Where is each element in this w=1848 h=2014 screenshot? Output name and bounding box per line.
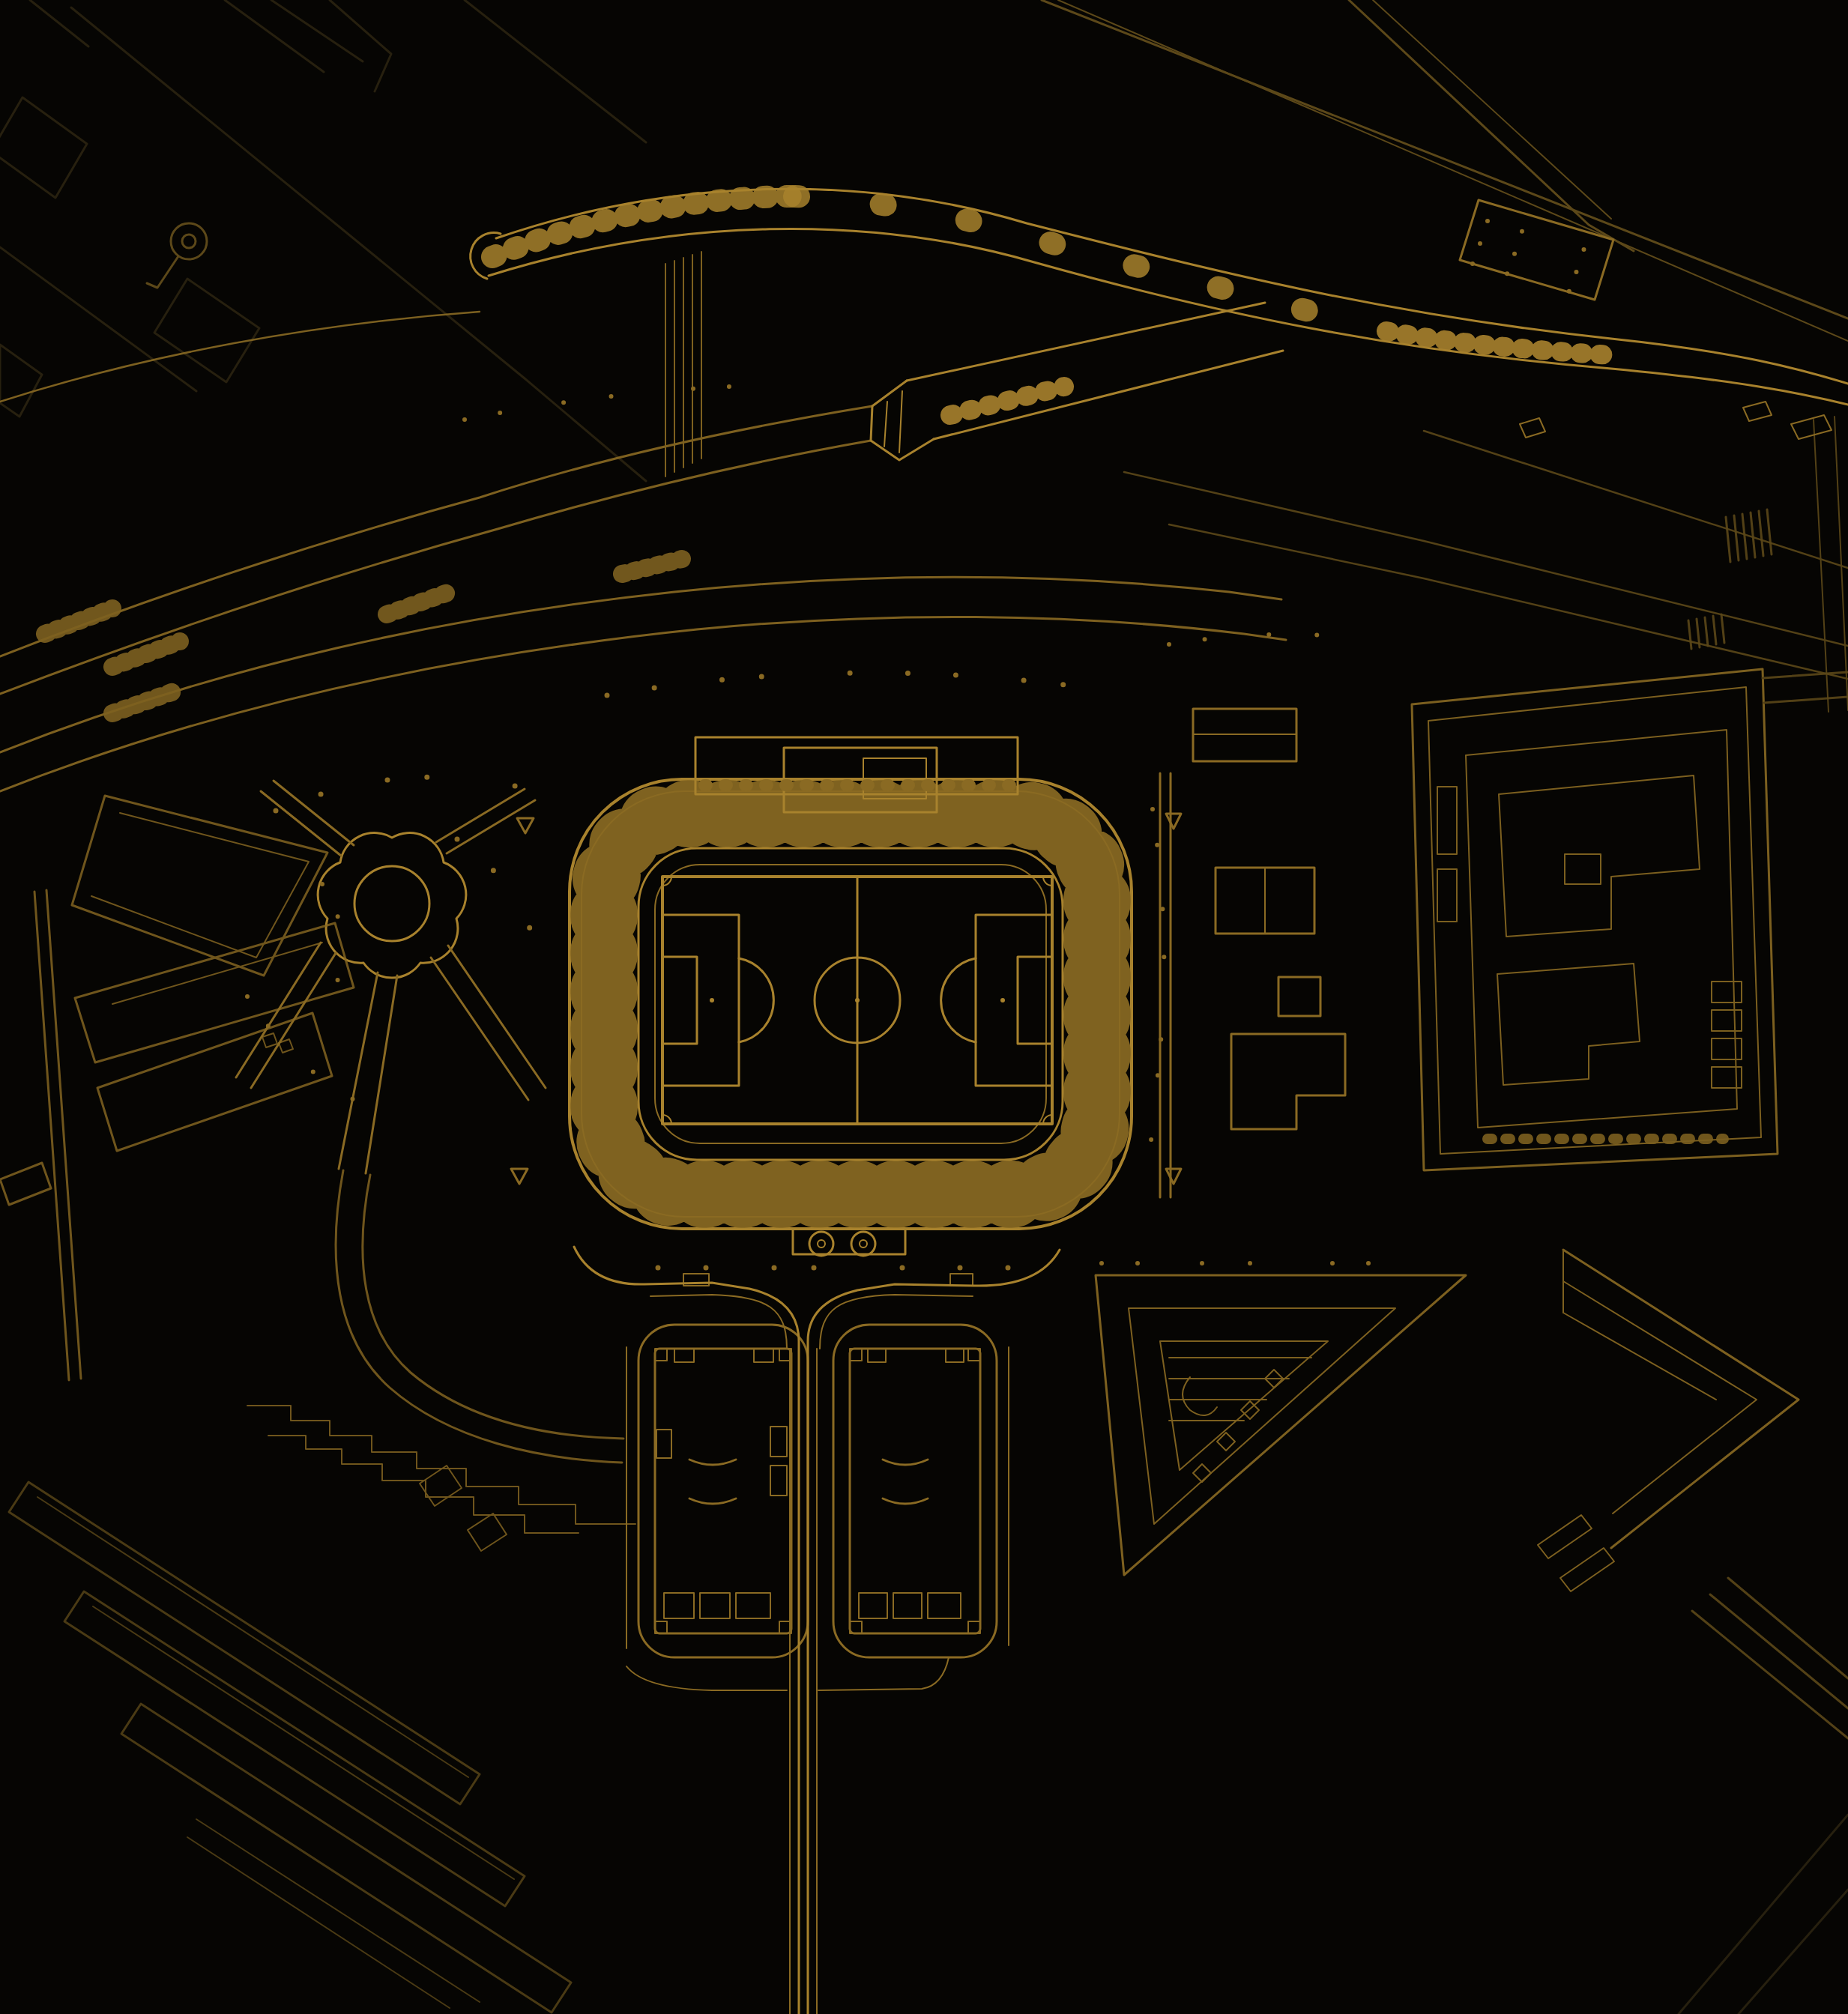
football-pitch (662, 877, 1052, 1124)
twin-block-west (638, 1325, 808, 1657)
flower-plaza (236, 781, 546, 1173)
stadium-bowl (511, 737, 1181, 1286)
site-plan-map (0, 0, 1848, 2014)
railway-viaduct (471, 189, 1848, 460)
triangle-blocks (1096, 1250, 1848, 1738)
south-plaza-streets (247, 1170, 635, 1551)
twin-block-east (833, 1325, 997, 1657)
faint-streets (0, 0, 1848, 2014)
site-plan-canvas (0, 0, 1848, 2014)
dotted-deck (1460, 200, 1613, 300)
east-outbuildings (1193, 709, 1345, 1129)
south-access-road (574, 1247, 1060, 2014)
key-marker-icon (147, 223, 207, 288)
viaduct-tube (871, 303, 1283, 460)
east-complex (1412, 509, 1848, 1170)
south-entrance (683, 1229, 973, 1286)
west-blocks (0, 796, 354, 1380)
vignette-overlay (0, 0, 1848, 2014)
terrace-rows (9, 1482, 571, 2013)
diagonal-roads-ne (1042, 0, 1848, 439)
arterial-roads (0, 252, 1848, 791)
